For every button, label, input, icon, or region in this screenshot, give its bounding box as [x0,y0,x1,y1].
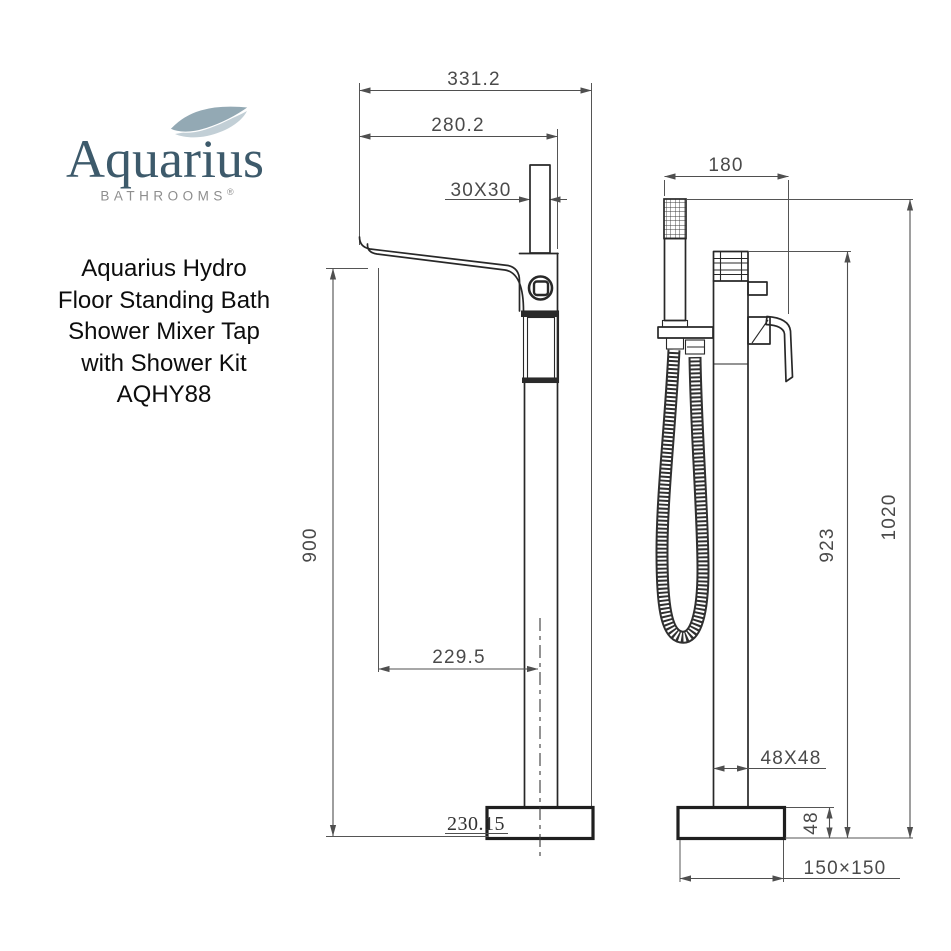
hand-shower-head [664,199,686,239]
shower-hose [662,350,703,637]
page: Aquarius BATHROOMS® Aquarius Hydro Floor… [0,0,951,951]
side-view: 180 [658,155,913,882]
hand-shower-grip [665,239,686,321]
dim-overall-height-1020: 1020 [687,200,913,839]
dim-label-column-size: 48X48 [761,748,822,769]
base-plate-side [678,808,785,839]
dim-base-plate-150: 150×150 [680,840,900,882]
hand-shower [663,199,688,327]
dim-base-note: 230.15 [445,813,508,835]
hand-shower-collar [663,321,688,328]
dim-base-height-48: 48 [786,808,834,839]
column-front [520,254,559,808]
dim-label-spout-reach: 229.5 [432,647,486,668]
dim-label-base-note: 230.15 [447,813,505,835]
dim-holder-size: 30X30 [445,180,567,201]
dim-spout-reach: 229.5 [379,268,539,672]
dim-label-column-height: 923 [817,527,838,562]
spout-profile [714,252,749,282]
shower-holder-bracket [658,327,713,338]
column-side [714,281,749,807]
dim-label-overall-height: 1020 [879,493,900,540]
diverter-button-side [748,282,767,295]
dim-height-900: 900 [300,269,488,837]
front-view: 331.2 280.2 30X30 [300,69,593,860]
dim-label-depth-180: 180 [708,155,743,176]
dim-label-holder-size: 30X30 [451,180,512,201]
diverter-button [529,277,552,300]
lever-handle [748,317,793,382]
dim-label-spout-width: 280.2 [431,115,485,136]
dim-label-overall-width: 331.2 [447,69,501,90]
dim-column-size: 48X48 [714,748,827,769]
technical-drawing: 331.2 280.2 30X30 [0,0,951,951]
holder-post [530,165,550,253]
dim-label-height-900: 900 [300,527,321,562]
spout-blade [360,237,524,311]
dim-label-base-plate: 150×150 [804,858,887,879]
dim-label-base-height: 48 [801,811,822,835]
handle-panel [521,311,559,384]
